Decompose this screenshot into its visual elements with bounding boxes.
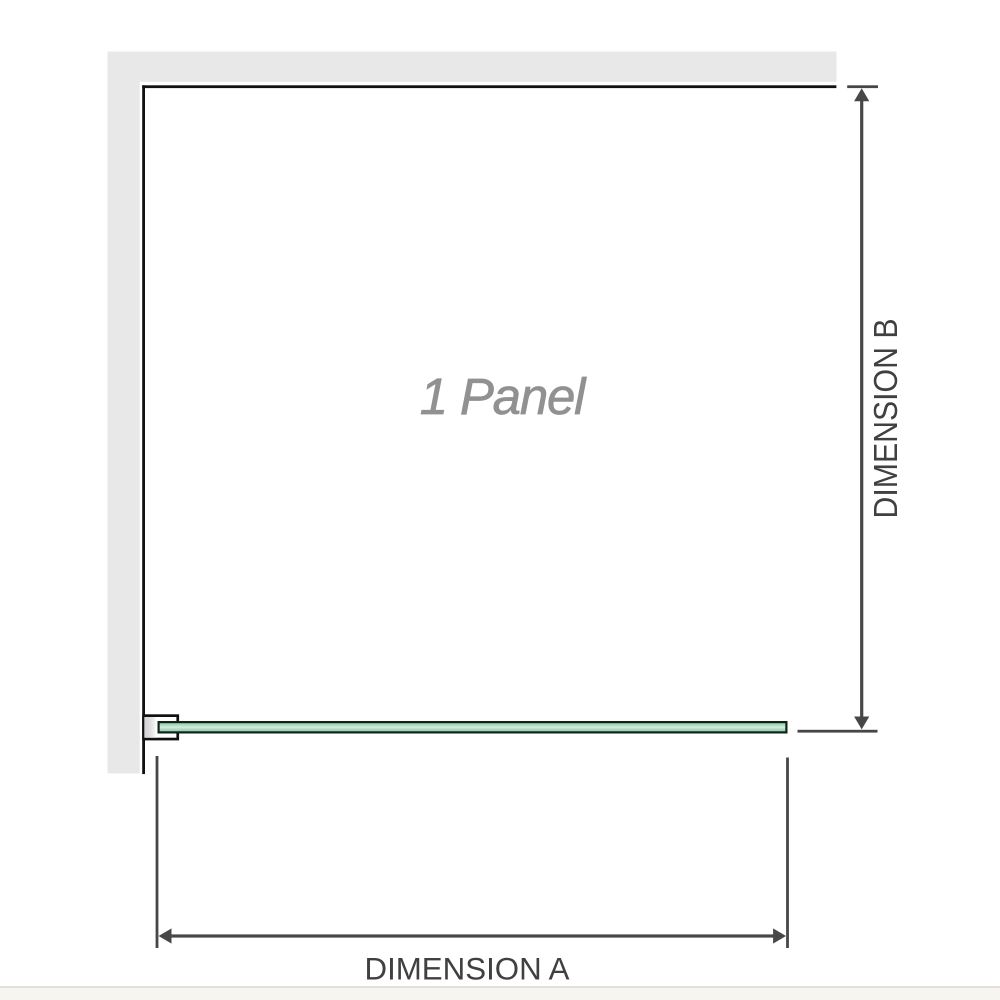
svg-text:DIMENSION B: DIMENSION B <box>867 319 904 519</box>
svg-text:1 Panel: 1 Panel <box>420 368 587 425</box>
svg-text:DIMENSION A: DIMENSION A <box>365 951 570 987</box>
